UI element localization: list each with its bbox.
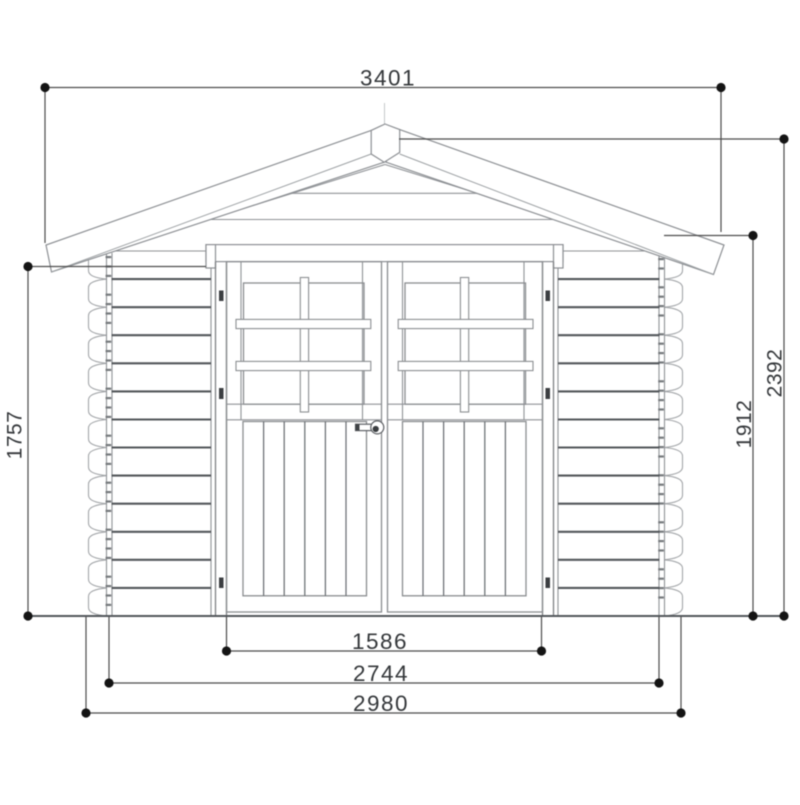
svg-text:1586: 1586 xyxy=(352,629,408,654)
svg-text:2392: 2392 xyxy=(764,349,787,398)
svg-text:1912: 1912 xyxy=(733,400,756,449)
svg-text:2744: 2744 xyxy=(353,661,409,686)
svg-text:2980: 2980 xyxy=(353,691,409,716)
svg-text:1757: 1757 xyxy=(4,411,27,460)
svg-text:3401: 3401 xyxy=(360,66,416,91)
